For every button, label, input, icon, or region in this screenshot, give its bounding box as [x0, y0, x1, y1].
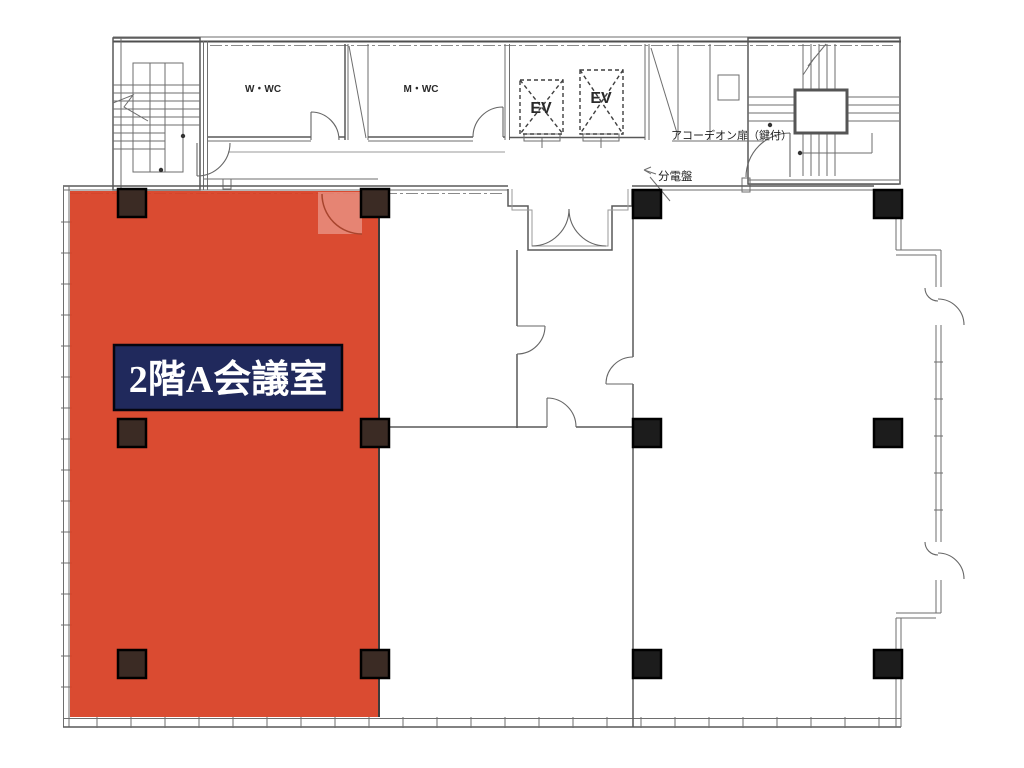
stair-break-mark	[803, 44, 826, 75]
room-label-plate: 2階A会議室	[114, 345, 342, 410]
elevator-left-label: EV	[530, 100, 552, 117]
corridor	[197, 143, 505, 189]
east-wall-lower-jog	[896, 613, 941, 618]
column	[633, 190, 661, 218]
highlighted-room	[70, 191, 379, 717]
elevator-right-label: EV	[590, 90, 612, 107]
room-label-text: 2階A会議室	[129, 358, 327, 401]
column	[633, 419, 661, 447]
accordion-door-note: アコーデオン扉（鍵付）	[671, 128, 792, 142]
stairwell-right	[742, 38, 900, 192]
corridor-door-swing	[197, 143, 230, 176]
wall-notch	[223, 179, 231, 189]
floor-plan-canvas: W・WC M・WC EV EV	[0, 0, 1024, 768]
column	[874, 419, 902, 447]
womens-wc-door-swing	[311, 112, 339, 140]
mens-wc-label: M・WC	[404, 84, 439, 95]
column	[118, 189, 146, 217]
west-window-wall	[64, 186, 70, 728]
east-wall-upper-jog	[896, 250, 941, 255]
stair-post-dot	[159, 168, 163, 172]
elevator-bay-right-wall	[645, 44, 649, 140]
east-wall-segment-3	[936, 580, 941, 613]
distribution-board-note: 分電盤	[658, 170, 693, 183]
service-box	[718, 75, 739, 100]
stair-post-dot	[181, 134, 185, 138]
distribution-board-arrow	[644, 167, 656, 174]
stair-corridor-divider	[204, 41, 208, 190]
stair-landing	[795, 90, 847, 133]
middle-room-south-door-swing	[547, 398, 576, 427]
mens-wc-right-wall	[505, 44, 510, 140]
stairwell-left	[113, 38, 208, 190]
stairwell-left-outline	[113, 38, 200, 190]
column	[874, 190, 902, 218]
entrance-vestibule	[508, 189, 632, 250]
mens-wc-door-swing	[473, 107, 503, 137]
east-wall-segment-2	[936, 325, 941, 542]
stair-post-dot	[798, 151, 802, 155]
elevator-sill-ticks	[542, 138, 601, 148]
womens-wc-label: W・WC	[245, 84, 281, 95]
stair-flights-left	[748, 97, 795, 121]
east-wall-upper-stub	[896, 216, 901, 250]
east-wall-mullions	[934, 362, 943, 510]
stair-post-dot	[768, 123, 772, 127]
stair-flights-right	[847, 97, 899, 121]
middle-room-west-door-swing	[517, 326, 545, 354]
room-mens-wc: M・WC	[368, 44, 510, 141]
column	[633, 650, 661, 678]
plumbing-shaft	[348, 44, 368, 140]
column	[118, 419, 146, 447]
compartment-walls	[678, 44, 710, 140]
shaft-lines	[348, 44, 368, 140]
column	[361, 189, 389, 217]
column	[361, 419, 389, 447]
service-compartments	[651, 44, 739, 140]
elevator-bay: EV EV	[509, 44, 649, 148]
room-womens-wc: W・WC	[208, 44, 345, 141]
vestibule-door-right-swing	[569, 209, 606, 246]
column	[118, 650, 146, 678]
middle-room-partitions	[380, 190, 633, 727]
floor-plan-page: W・WC M・WC EV EV	[0, 0, 1024, 768]
east-wall-segment-1	[936, 250, 941, 287]
middle-room-east-door-swing	[606, 357, 633, 384]
vestibule-door-left-swing	[532, 209, 569, 246]
column	[361, 650, 389, 678]
east-door-swing-lower	[925, 542, 964, 579]
accordion-door-leader-diagonal	[651, 48, 677, 133]
column	[874, 650, 902, 678]
stair-flights-lower	[803, 133, 835, 176]
east-door-swing-upper	[925, 288, 964, 325]
highlight-area	[70, 191, 378, 717]
